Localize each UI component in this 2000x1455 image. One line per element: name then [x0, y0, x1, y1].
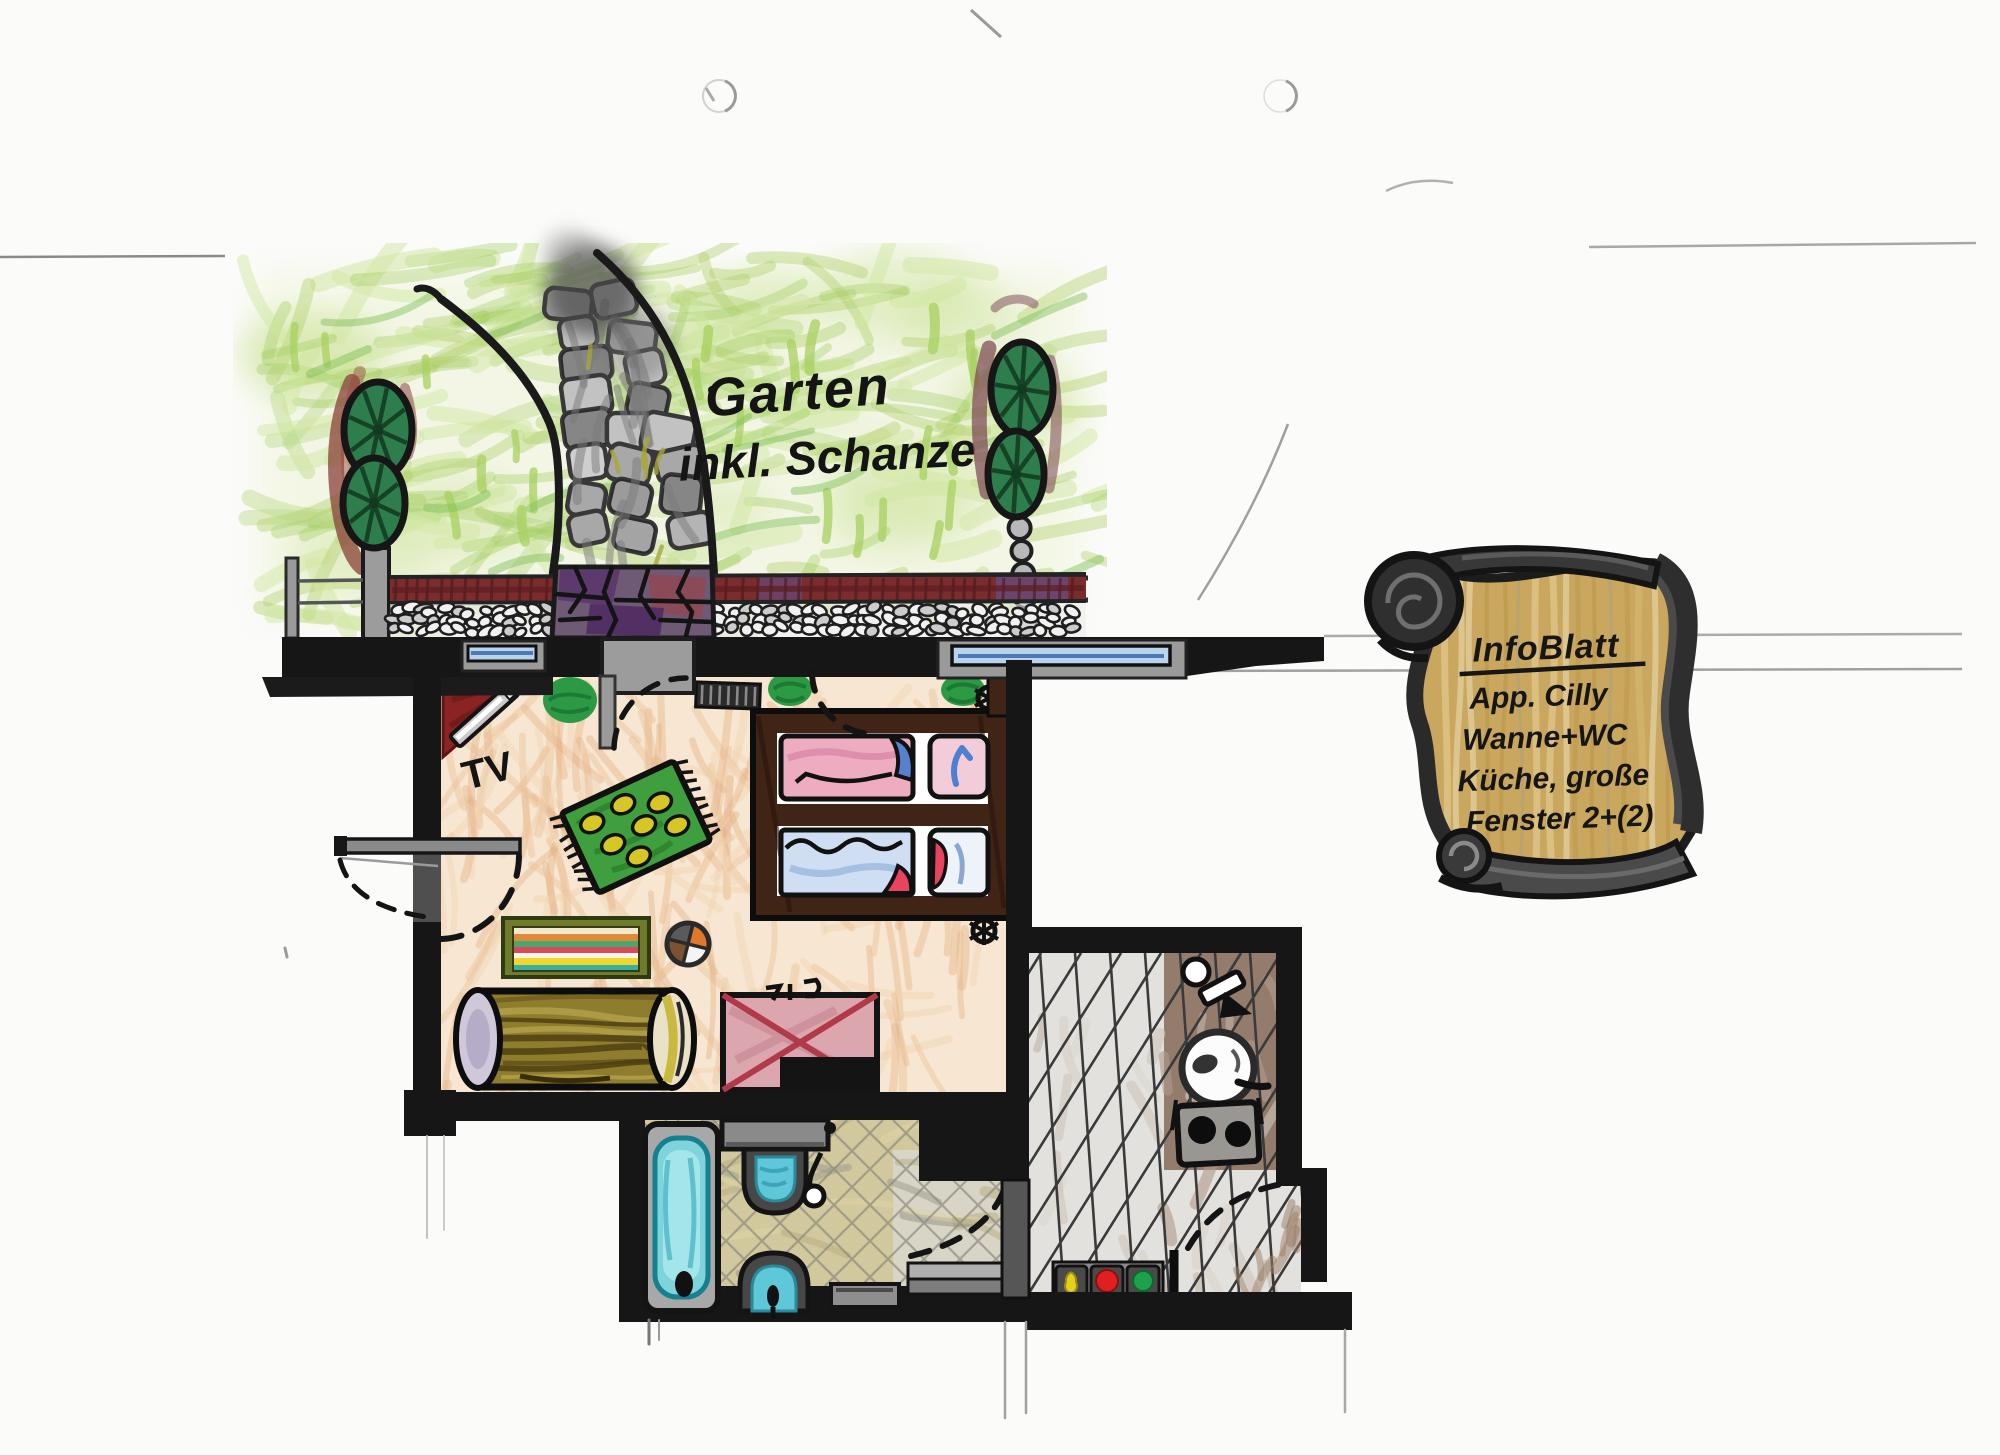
svg-text:InfoBlatt: InfoBlatt	[1472, 627, 1621, 670]
svg-text:App. Cilly: App. Cilly	[1468, 678, 1610, 716]
svg-text:Wanne+WC: Wanne+WC	[1462, 718, 1630, 757]
svg-text:Küche, große: Küche, große	[1457, 759, 1650, 799]
svg-text:Fenster 2+(2): Fenster 2+(2)	[1465, 799, 1654, 839]
